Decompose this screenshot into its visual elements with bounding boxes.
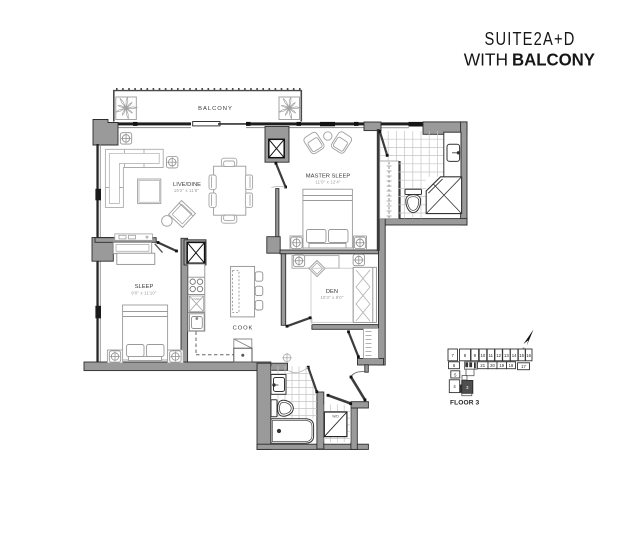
svg-text:9'0" x 11'10": 9'0" x 11'10"	[131, 290, 157, 295]
svg-text:BALCONY: BALCONY	[198, 106, 233, 112]
svg-text:21: 21	[480, 363, 485, 368]
svg-text:18: 18	[509, 363, 514, 368]
svg-text:19: 19	[499, 363, 504, 368]
svg-text:10: 10	[481, 353, 486, 358]
svg-text:20: 20	[490, 363, 495, 368]
svg-text:12: 12	[496, 353, 501, 358]
svg-text:10'3" x 8'0": 10'3" x 8'0"	[320, 295, 343, 300]
svg-text:WITH: WITH	[464, 49, 508, 69]
svg-text:OVEN: OVEN	[192, 297, 200, 301]
svg-text:11: 11	[489, 353, 494, 358]
svg-text:19'2" x 11'6": 19'2" x 11'6"	[174, 188, 200, 193]
svg-text:SLEEP: SLEEP	[135, 284, 154, 290]
svg-text:COOK: COOK	[233, 325, 254, 331]
svg-text:SUITE2A+D: SUITE2A+D	[485, 28, 576, 49]
svg-text:BALCONY: BALCONY	[512, 49, 595, 69]
svg-text:17: 17	[521, 364, 526, 369]
svg-text:11'0" x 12'4": 11'0" x 12'4"	[315, 179, 341, 184]
svg-text:14: 14	[512, 353, 517, 358]
svg-text:13: 13	[504, 353, 509, 358]
svg-text:FLOOR 3: FLOOR 3	[450, 400, 480, 407]
svg-text:W/D: W/D	[332, 414, 339, 418]
svg-text:15: 15	[519, 353, 524, 358]
svg-text:16: 16	[526, 353, 531, 358]
